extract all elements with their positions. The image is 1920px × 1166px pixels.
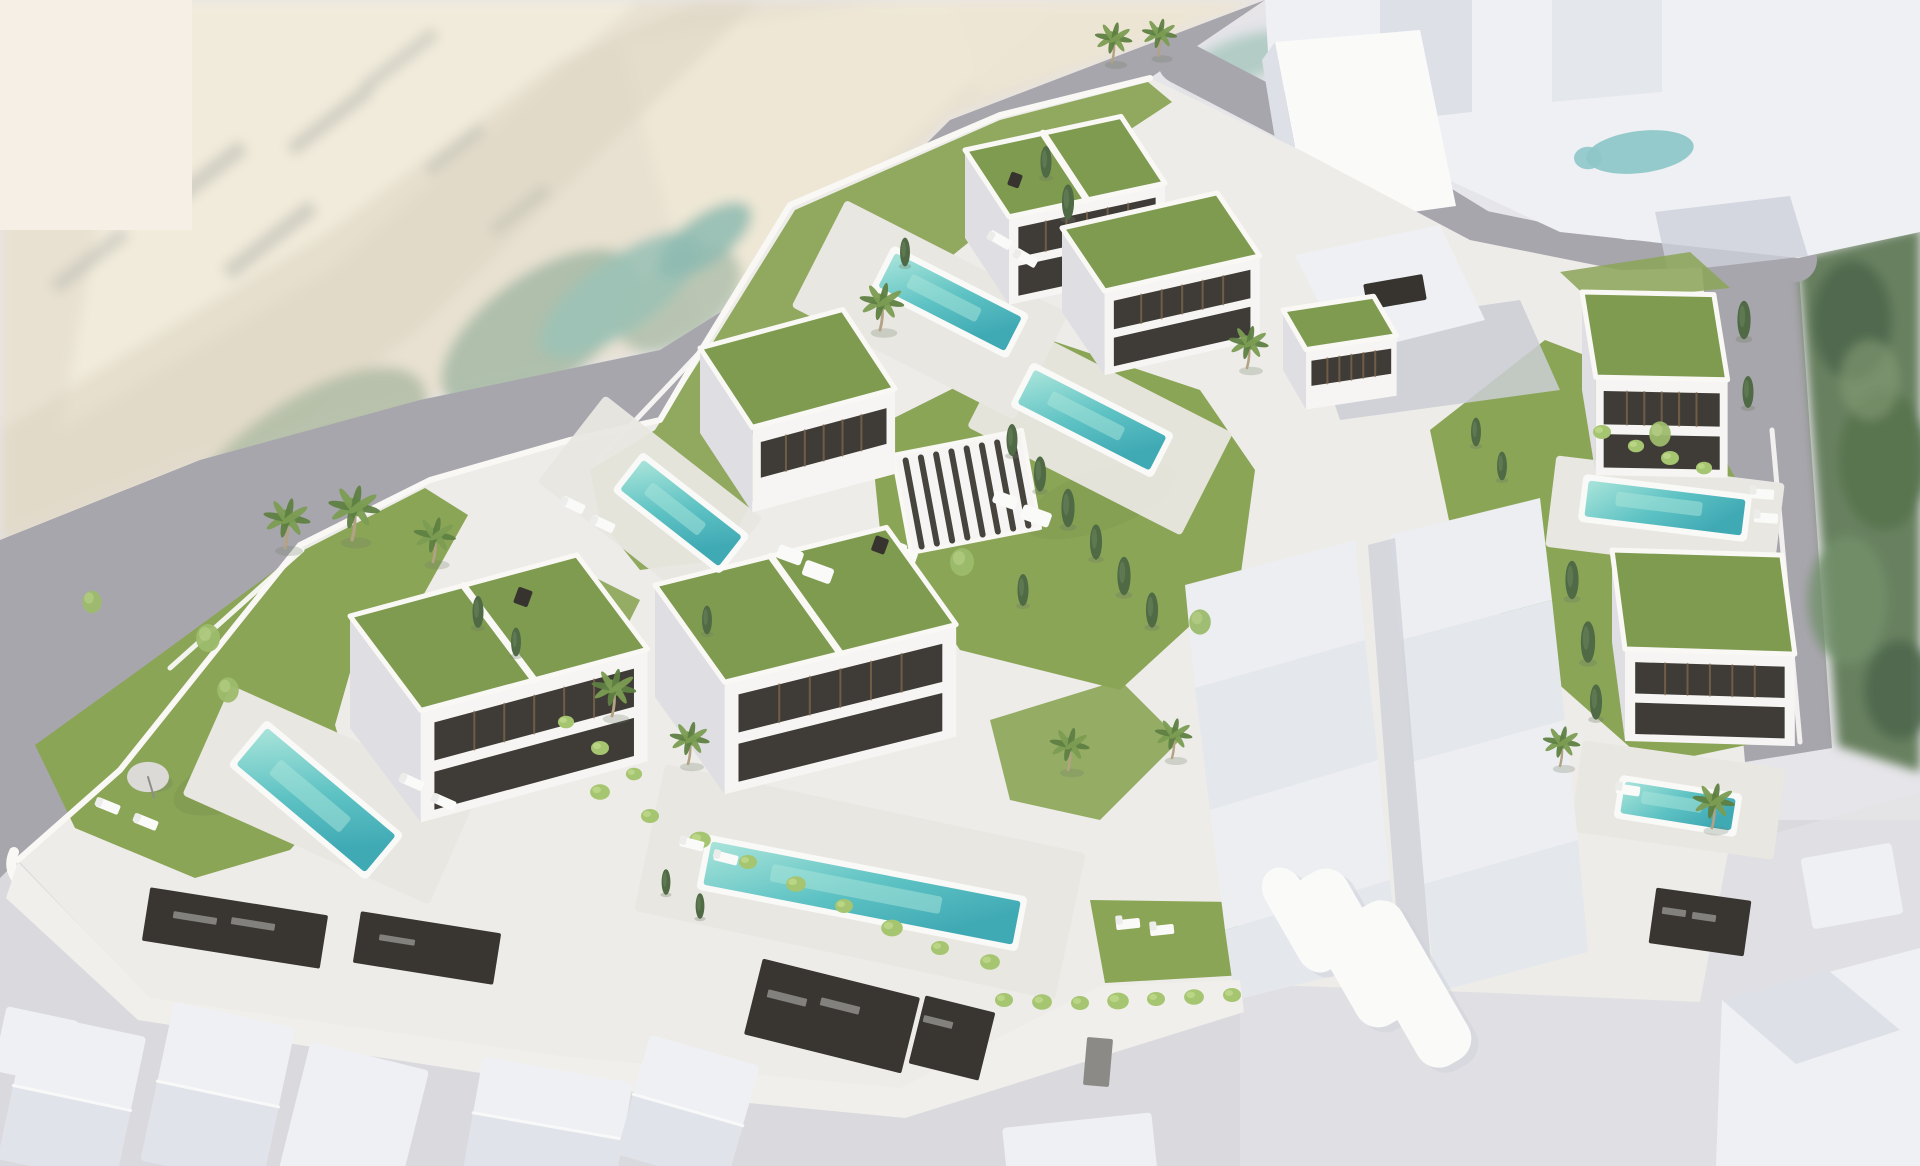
- hedge-bush-1: [641, 809, 659, 823]
- photo-blob-veg-4: [1840, 340, 1900, 420]
- hedge-bush-hi-9: [997, 995, 1005, 1001]
- cypress-hi-12: [1744, 380, 1749, 398]
- hedge-bush-hi-5: [837, 901, 845, 907]
- palm-shadow-6: [1105, 61, 1127, 69]
- lawn-8: [1090, 900, 1245, 983]
- cypress-hi-8: [1092, 529, 1098, 549]
- palm-shadow-11: [1703, 827, 1728, 836]
- hedge-bush-hi-18: [628, 770, 635, 775]
- scene-svg: Aerial 3D rendering of beachfront villa …: [0, 0, 1920, 1166]
- hedge-bush-hi-0: [592, 787, 601, 794]
- hedge-bush-19: [1593, 425, 1611, 439]
- hedge-bush-hi-19: [1595, 427, 1603, 433]
- palm-shadow-10: [1165, 757, 1187, 765]
- hedge-bush-13: [1147, 992, 1165, 1006]
- hedge-bush-hi-12: [1110, 995, 1120, 1002]
- hedge-bush-3: [739, 855, 757, 869]
- hedge-bush-12: [1107, 993, 1129, 1010]
- villa-right-upper-grass-roof: [1582, 292, 1728, 380]
- hedge-bush-hi-22: [1698, 464, 1705, 469]
- hedge-bush-hi-13: [1149, 994, 1157, 1000]
- cypress-hi-7: [1063, 494, 1069, 516]
- cypress-hi-2: [901, 241, 906, 257]
- hedge-bush-21: [1661, 451, 1679, 465]
- hedge-bush-hi-1: [643, 811, 651, 817]
- scene-root: [0, 0, 1920, 1166]
- hedge-bush-11: [1071, 996, 1089, 1010]
- palm-shadow-2: [424, 561, 449, 570]
- cypress-hi-6: [1036, 461, 1042, 481]
- villa-right-upper: [1582, 292, 1728, 478]
- hedge-bush-hi-17: [593, 743, 601, 749]
- hedge-bush-hi-3: [741, 857, 749, 863]
- garage-door-4: [1083, 1037, 1113, 1087]
- cypress-hi-18: [1583, 626, 1590, 649]
- sun-lounger-back-14: [1615, 781, 1623, 791]
- palm-shadow-8: [1239, 367, 1263, 376]
- hedge-bush-hi-10: [1034, 997, 1043, 1004]
- hedge-bush-14: [1184, 989, 1204, 1004]
- villa-top-3: [1283, 296, 1397, 409]
- hedge-bush-hi-14: [1186, 992, 1195, 999]
- leafy-tree-hi-1: [220, 680, 231, 693]
- hedge-bush-10: [1032, 994, 1052, 1009]
- palm-shadow-12: [1553, 765, 1575, 773]
- hedge-bush-20: [1628, 440, 1644, 453]
- cypress-hi-11: [1739, 306, 1745, 328]
- hedge-bush-16: [558, 716, 574, 729]
- sun-lounger-back-9: [1753, 509, 1761, 518]
- hedge-bush-18: [626, 768, 642, 781]
- cypress-hi-0: [1042, 150, 1047, 168]
- cypress-hi-17: [1567, 566, 1573, 588]
- hedge-bush-hi-7: [933, 943, 941, 949]
- palm-shadow-0: [275, 546, 303, 556]
- hedge-bush-hi-11: [1073, 998, 1081, 1004]
- hedge-bush-22: [1696, 462, 1712, 475]
- hedge-bush-hi-4: [788, 879, 797, 886]
- hedge-bush-9: [995, 993, 1013, 1007]
- leafy-tree-hi-5: [1652, 424, 1663, 437]
- villa-right-lower-grass-roof: [1612, 550, 1795, 654]
- context-pool-tail: [1574, 147, 1602, 169]
- hedge-bush-hi-16: [560, 718, 567, 723]
- palm-shadow-1: [341, 538, 372, 549]
- leafy-tree-hi-2: [953, 551, 965, 565]
- sun-lounger-back-11: [1149, 921, 1157, 931]
- leafy-tree-hi-0: [199, 627, 211, 641]
- hedge-bush-hi-21: [1663, 453, 1671, 459]
- cypress-hi-1: [1064, 189, 1070, 209]
- sun-lounger-back-8: [1749, 485, 1757, 494]
- hedge-bush-4: [786, 876, 806, 891]
- palm-shadow-5: [871, 328, 898, 338]
- cypress-hi-19: [1592, 689, 1598, 709]
- hedge-bush-17: [591, 741, 609, 755]
- cypress-hi-15: [663, 872, 667, 886]
- cypress-hi-5: [1008, 428, 1013, 446]
- hedge-bush-hi-20: [1630, 442, 1637, 447]
- cypress-hi-21: [703, 609, 708, 625]
- palm-shadow-7: [1152, 55, 1173, 63]
- hedge-bush-hi-6: [884, 922, 894, 929]
- photo-cream-overlay: [0, 0, 192, 230]
- cypress-hi-13: [1472, 421, 1477, 437]
- cypress-hi-20: [1019, 578, 1024, 596]
- hedge-bush-6: [881, 920, 903, 937]
- sun-lounger-back-10: [1115, 915, 1123, 925]
- villa-right-lower-window-band-1: [1635, 703, 1784, 739]
- architectural-rendering: Aerial 3D rendering of beachfront villa …: [0, 0, 1920, 1166]
- hedge-bush-8: [980, 954, 1000, 969]
- context-building-2: [1552, 0, 1662, 102]
- photo-blob-veg-2: [1808, 535, 1888, 665]
- palm-shadow-9: [1060, 769, 1084, 778]
- hedge-bush-0: [590, 784, 610, 799]
- hedge-bush-hi-15: [1225, 990, 1233, 996]
- cypress-hi-4: [512, 631, 517, 647]
- palm-shadow-4: [680, 763, 704, 772]
- cypress-hi-16: [697, 896, 701, 910]
- cypress-hi-10: [1148, 597, 1154, 617]
- hedge-bush-7: [931, 941, 949, 955]
- cypress-hi-3: [474, 600, 479, 618]
- cypress-hi-14: [1498, 455, 1503, 471]
- hedge-bush-hi-8: [982, 957, 991, 964]
- villa-right-lower: [1612, 550, 1795, 746]
- leafy-tree-hi-4: [84, 592, 94, 603]
- palm-shadow-3: [603, 714, 630, 724]
- hedge-bush-15: [1223, 988, 1241, 1002]
- leafy-tree-hi-3: [1192, 612, 1203, 625]
- cypress-hi-9: [1119, 562, 1125, 584]
- hedge-bush-5: [835, 899, 853, 913]
